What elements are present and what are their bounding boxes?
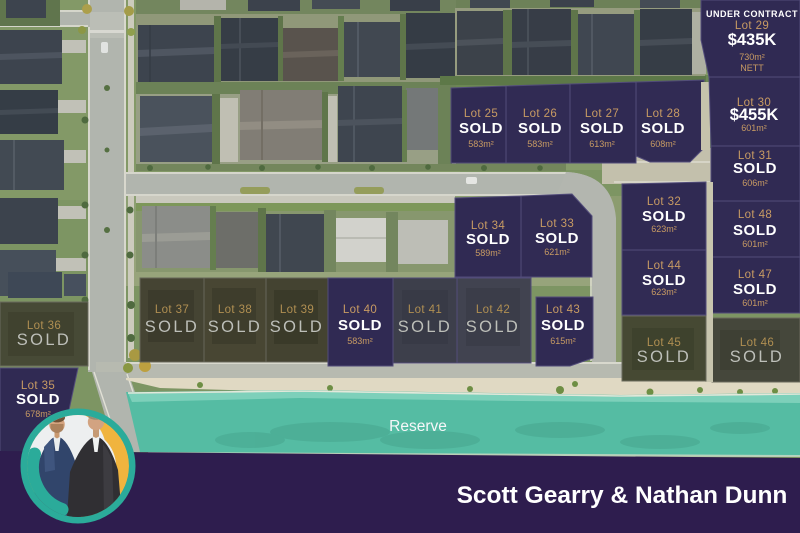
svg-text:SOLD: SOLD (459, 120, 503, 137)
svg-text:SOLD: SOLD (208, 318, 263, 336)
svg-text:623m²: 623m² (651, 224, 677, 234)
svg-text:601m²: 601m² (742, 298, 768, 308)
svg-text:SOLD: SOLD (338, 317, 382, 334)
svg-text:Lot 26: Lot 26 (523, 108, 557, 120)
svg-text:SOLD: SOLD (466, 318, 521, 336)
svg-text:621m²: 621m² (544, 247, 570, 257)
svg-text:601m²: 601m² (742, 239, 768, 249)
svg-text:SOLD: SOLD (518, 120, 562, 137)
svg-text:Lot 33: Lot 33 (540, 218, 574, 230)
svg-text:SOLD: SOLD (466, 231, 510, 248)
svg-text:SOLD: SOLD (580, 120, 624, 137)
svg-text:SOLD: SOLD (637, 348, 692, 366)
svg-text:678m²: 678m² (25, 409, 51, 419)
svg-text:613m²: 613m² (589, 139, 615, 149)
svg-text:SOLD: SOLD (541, 317, 585, 334)
svg-text:Lot 44: Lot 44 (647, 260, 682, 272)
svg-text:UNDER CONTRACT: UNDER CONTRACT (706, 9, 798, 19)
svg-text:Lot 27: Lot 27 (585, 108, 619, 120)
svg-text:Lot 43: Lot 43 (546, 304, 580, 316)
svg-text:$435K: $435K (728, 31, 777, 49)
svg-text:Lot 41: Lot 41 (408, 304, 442, 316)
svg-text:SOLD: SOLD (270, 318, 325, 336)
svg-text:SOLD: SOLD (145, 318, 200, 336)
svg-text:SOLD: SOLD (730, 348, 785, 366)
svg-text:583m²: 583m² (527, 139, 553, 149)
svg-text:583m²: 583m² (468, 139, 494, 149)
svg-text:SOLD: SOLD (17, 331, 72, 349)
svg-text:Lot 42: Lot 42 (476, 304, 510, 316)
svg-text:608m²: 608m² (650, 139, 676, 149)
svg-text:Lot 28: Lot 28 (646, 108, 680, 120)
svg-text:Lot 40: Lot 40 (343, 304, 377, 316)
svg-text:$455K: $455K (730, 106, 779, 124)
svg-text:SOLD: SOLD (733, 160, 777, 177)
svg-text:Lot 47: Lot 47 (738, 269, 772, 281)
svg-text:SOLD: SOLD (642, 208, 686, 225)
svg-text:SOLD: SOLD (535, 230, 579, 247)
svg-text:SOLD: SOLD (733, 222, 777, 239)
svg-text:Lot 32: Lot 32 (647, 196, 681, 208)
svg-text:Scott Gearry & Nathan Dunn: Scott Gearry & Nathan Dunn (457, 482, 788, 509)
svg-text:NETT: NETT (740, 63, 764, 73)
svg-text:SOLD: SOLD (641, 120, 685, 137)
svg-text:623m²: 623m² (651, 287, 677, 297)
svg-text:730m²: 730m² (739, 52, 765, 62)
svg-text:Lot 39: Lot 39 (280, 304, 314, 316)
svg-text:589m²: 589m² (475, 248, 501, 258)
svg-text:606m²: 606m² (742, 178, 768, 188)
svg-text:SOLD: SOLD (398, 318, 453, 336)
svg-text:SOLD: SOLD (733, 281, 777, 298)
svg-text:Lot 25: Lot 25 (464, 108, 498, 120)
svg-text:583m²: 583m² (347, 336, 373, 346)
svg-text:Lot 38: Lot 38 (218, 304, 252, 316)
svg-text:SOLD: SOLD (16, 391, 60, 408)
svg-text:615m²: 615m² (550, 336, 576, 346)
svg-text:601m²: 601m² (741, 123, 767, 133)
svg-text:Lot 37: Lot 37 (155, 304, 189, 316)
svg-text:Lot 48: Lot 48 (738, 209, 772, 221)
